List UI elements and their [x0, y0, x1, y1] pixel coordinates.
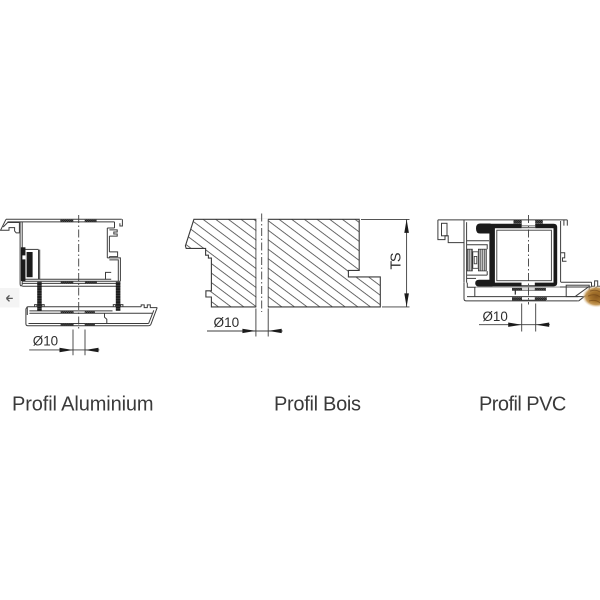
svg-text:Ø10: Ø10: [483, 309, 508, 324]
svg-text:Profil PVC: Profil PVC: [479, 393, 566, 415]
svg-text:Ø10: Ø10: [214, 315, 240, 330]
svg-text:Profil Bois: Profil Bois: [274, 393, 361, 415]
svg-text:Ø10: Ø10: [33, 334, 58, 349]
svg-text:TS: TS: [389, 253, 405, 270]
svg-text:Profil Aluminium: Profil Aluminium: [12, 393, 153, 415]
